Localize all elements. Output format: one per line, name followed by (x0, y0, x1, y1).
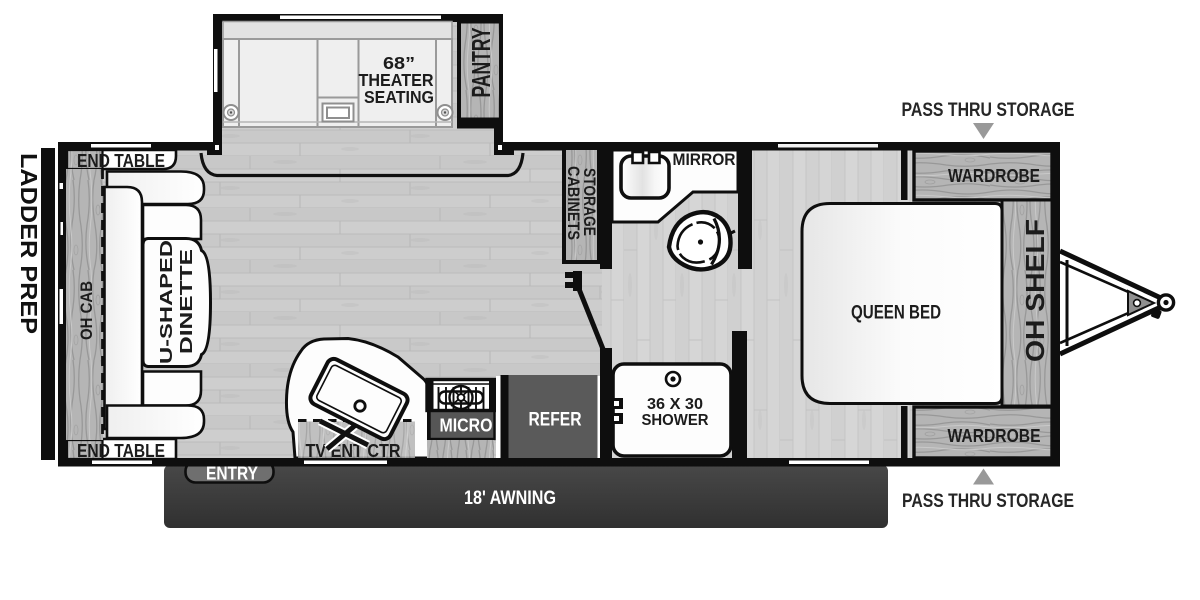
svg-text:DINETTE: DINETTE (176, 249, 196, 354)
svg-text:REFER: REFER (529, 409, 582, 431)
svg-text:OH SHELF: OH SHELF (1020, 219, 1050, 362)
svg-text:SHOWER: SHOWER (642, 412, 709, 429)
svg-text:36 X 30: 36 X 30 (647, 396, 703, 413)
svg-text:WARDROBE: WARDROBE (948, 426, 1041, 446)
svg-text:END TABLE: END TABLE (77, 441, 165, 461)
svg-text:OH CAB: OH CAB (77, 281, 96, 340)
svg-text:18' AWNING: 18' AWNING (464, 487, 556, 509)
svg-text:LADDER PREP: LADDER PREP (16, 153, 42, 334)
svg-text:U-SHAPED: U-SHAPED (156, 240, 176, 364)
svg-text:QUEEN BED: QUEEN BED (851, 302, 941, 324)
svg-text:MIRROR: MIRROR (673, 150, 736, 169)
svg-text:SEATING: SEATING (364, 87, 434, 107)
svg-text:PANTRY: PANTRY (466, 28, 496, 98)
svg-text:STORAGE: STORAGE (580, 168, 599, 236)
svg-text:TV ENT CTR: TV ENT CTR (306, 441, 401, 461)
svg-text:WARDROBE: WARDROBE (948, 166, 1040, 186)
svg-text:MICRO: MICRO (440, 416, 493, 436)
svg-text:PASS THRU STORAGE: PASS THRU STORAGE (902, 99, 1075, 121)
svg-text:END TABLE: END TABLE (77, 151, 165, 171)
svg-text:PASS THRU STORAGE: PASS THRU STORAGE (902, 490, 1074, 512)
